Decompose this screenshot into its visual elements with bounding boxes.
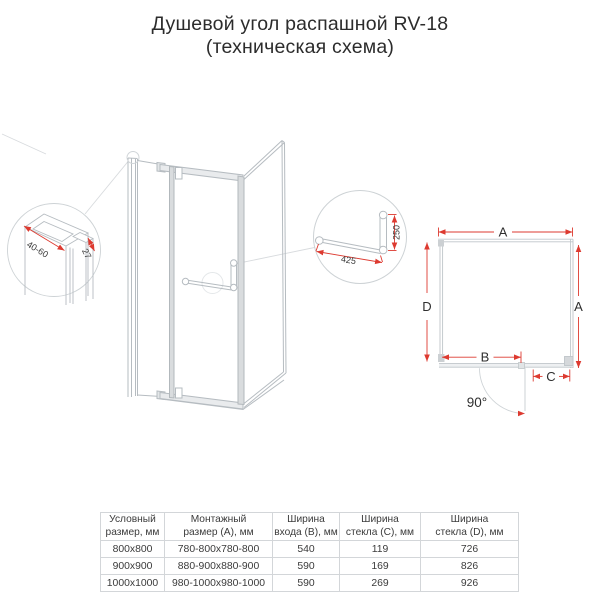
cell-glass-d: 826 <box>421 558 519 575</box>
wall-bracket-bottom-left <box>438 354 445 362</box>
cell-mounting: 980-1000x980-1000 <box>165 575 273 592</box>
door-bottom-hinge <box>176 388 183 398</box>
cell-glass-c: 269 <box>340 575 421 592</box>
plan-dim-B-entry: B <box>481 350 490 365</box>
handle-length-dim: 425 <box>340 254 356 266</box>
plan-dim-A-right: A <box>574 299 583 314</box>
door-left-stile <box>170 167 175 399</box>
cell-nominal: 800x800 <box>101 541 165 558</box>
bottom-frame-bar <box>157 380 284 410</box>
wall-profile-detail-callout: 40-60 27 <box>8 204 101 306</box>
cell-glass-c: 119 <box>340 541 421 558</box>
cell-entry: 540 <box>273 541 340 558</box>
header-glass-c-width: Ширина стекла (C), мм <box>340 513 421 541</box>
top-plan-view: A D A B C 90° <box>422 225 583 414</box>
table-header-row: Условный размер, мм Монтажный размер (A)… <box>101 513 519 541</box>
cell-mounting: 880-900x880-900 <box>165 558 273 575</box>
table-row: 900x900 880-900x880-900 590 169 826 <box>101 558 519 575</box>
size-table-grid: Условный размер, мм Монтажный размер (A)… <box>100 512 519 592</box>
cell-entry: 590 <box>273 558 340 575</box>
plan-dimension-lines <box>427 228 579 382</box>
door-handle <box>182 260 237 294</box>
wall-bracket-bottom-right <box>565 357 574 366</box>
cell-glass-d: 726 <box>421 541 519 558</box>
header-entry-width: Ширина входа (B), мм <box>273 513 340 541</box>
technical-drawing: 40-60 27 425 2 <box>0 0 600 600</box>
cell-mounting: 780-800x780-800 <box>165 541 273 558</box>
callout-marker-circle <box>127 152 139 164</box>
plan-dim-C-glass: C <box>546 369 555 384</box>
cell-nominal: 900x900 <box>101 558 165 575</box>
door-top-hinge <box>176 168 183 180</box>
door-hinge-notch <box>519 363 525 369</box>
size-table: Условный размер, мм Монтажный размер (A)… <box>100 512 519 592</box>
plan-door-angle: 90° <box>467 395 487 410</box>
handle-sketch <box>316 211 388 254</box>
cell-glass-d: 926 <box>421 575 519 592</box>
handle-detail-callout: 425 250 <box>314 191 407 284</box>
wall-bracket-top-left <box>438 240 444 247</box>
table-row: 1000x1000 980-1000x980-1000 590 269 926 <box>101 575 519 592</box>
header-nominal-size: Условный размер, мм <box>101 513 165 541</box>
header-glass-d-width: Ширина стекла (D), мм <box>421 513 519 541</box>
table-row: 800x800 780-800x780-800 540 119 726 <box>101 541 519 558</box>
left-wall-profile <box>127 152 139 398</box>
technical-scheme-page: Душевой угол распашной RV-18 (техническа… <box>0 0 600 600</box>
right-side-glass-panel <box>244 141 286 408</box>
cell-entry: 590 <box>273 575 340 592</box>
profile-width-dim: 40-60 <box>25 239 50 259</box>
plan-dim-A-top: A <box>499 225 508 240</box>
profile-isometric-sketch <box>25 214 93 305</box>
handle-height-dim: 250 <box>392 225 402 240</box>
main-isometric-view <box>2 134 315 410</box>
profile-depth-dim: 27 <box>80 247 93 260</box>
plan-dim-D-left: D <box>422 299 431 314</box>
door-right-stile <box>238 176 244 405</box>
cell-nominal: 1000x1000 <box>101 575 165 592</box>
cell-glass-c: 169 <box>340 558 421 575</box>
header-mounting-size: Монтажный размер (A), мм <box>165 513 273 541</box>
plan-walls-and-glass <box>438 239 573 368</box>
